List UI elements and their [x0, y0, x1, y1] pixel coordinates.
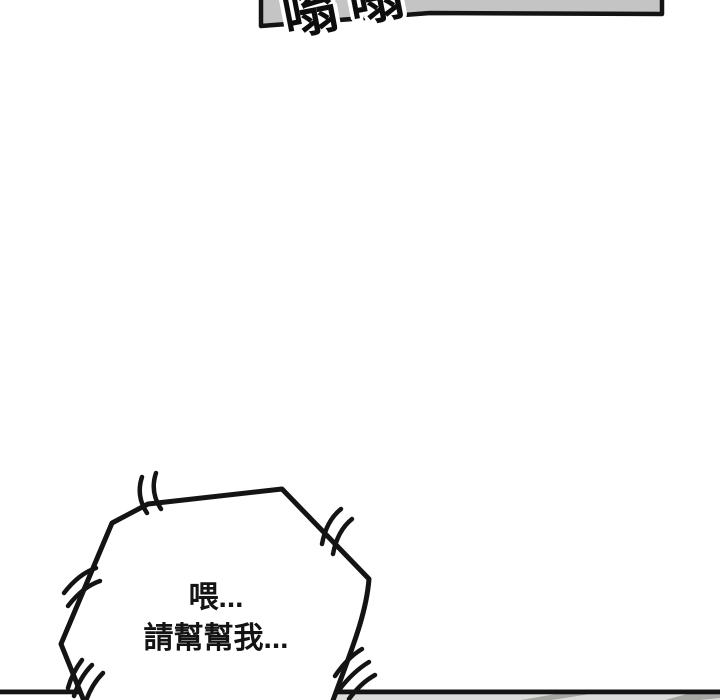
- bubble-text-line-2: 請幫幫我...: [106, 618, 326, 659]
- bubble-dialogue: 喂... 請幫幫我...: [106, 577, 326, 659]
- bubble-text-line-1: 喂...: [106, 577, 326, 618]
- comic-page: 嗡嗡 喂... 請幫幫我...: [0, 0, 720, 700]
- next-panel-strip: [330, 694, 720, 700]
